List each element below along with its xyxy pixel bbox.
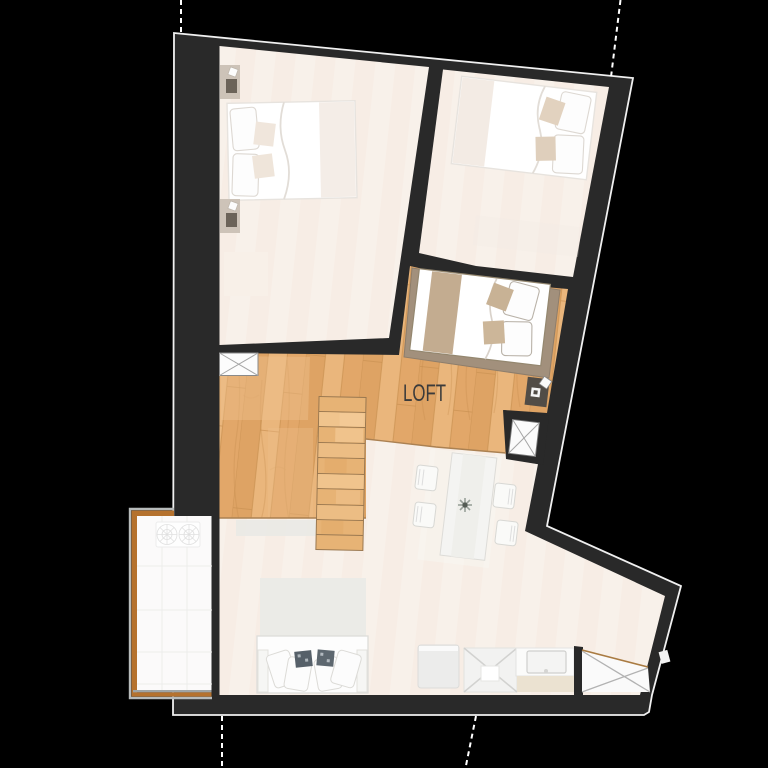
svg-text:LOFT: LOFT xyxy=(403,380,446,407)
